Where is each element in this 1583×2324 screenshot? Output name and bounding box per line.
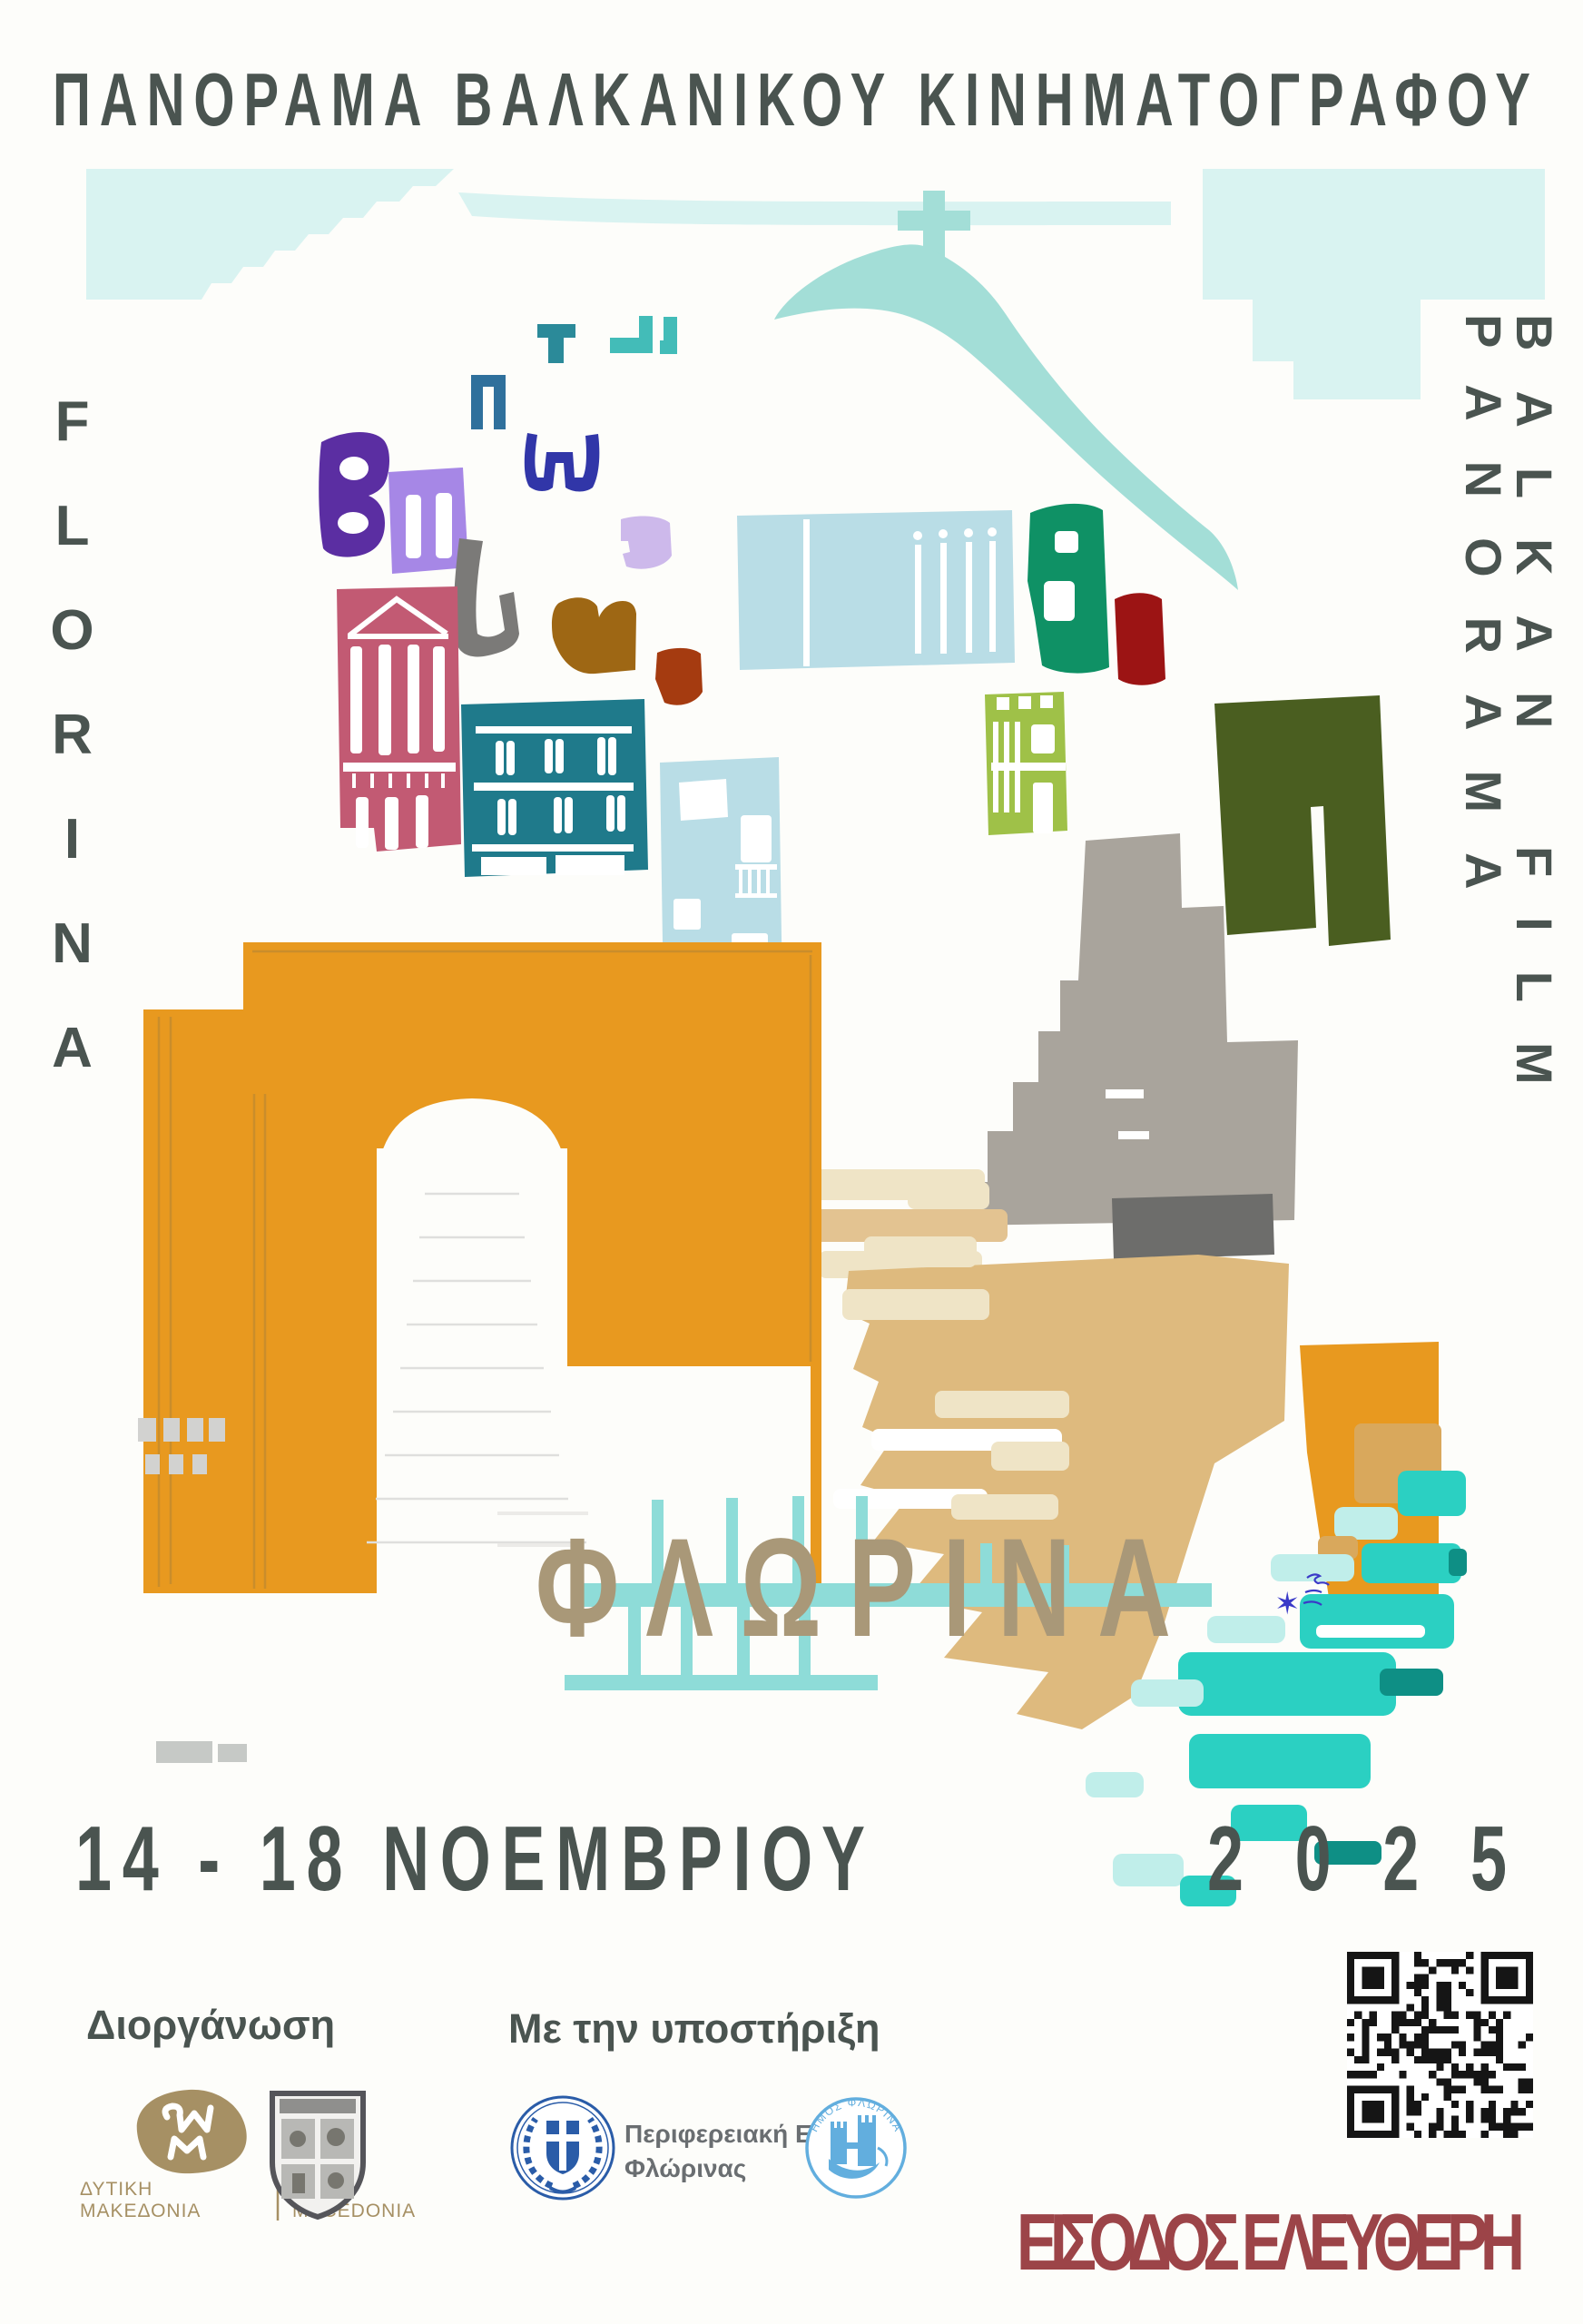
colonnade-building [737, 510, 1015, 670]
arch-cinema-building [143, 942, 821, 1598]
letter-l-shapes [610, 316, 677, 354]
date-range-text: 14 - 18 ΝΟΕΜΒΡΙΟΥ [75, 1807, 865, 1910]
signature-star-icon: ✶ [1274, 1587, 1301, 1621]
festival-poster: ΠΑΝΟΡΑΜΑ ΒΑΛΚΑΝΙΚΟΥ ΚΙΝΗΜΑΤΟΓΡΑΦΟΥ ΦΛΩΡΙ… [0, 0, 1583, 2324]
poster-artwork: ΠΑΝΟΡΑΜΑ ΒΑΛΚΑΝΙΚΟΥ ΚΙΝΗΜΑΤΟΓΡΑΦΟΥ ΦΛΩΡΙ… [0, 0, 1583, 2324]
pink-classical-building [337, 586, 461, 852]
letter-pi-shape [471, 375, 506, 429]
letter-u-shape [454, 538, 519, 656]
lilac-building [388, 468, 468, 574]
letter-t-shape [537, 324, 575, 363]
dark-red-blob-building [1115, 593, 1165, 685]
castle-building [985, 692, 1067, 835]
free-entry-text: ΕΙΣΟΔΟΣ ΕΛΕΥΘΕΡΗ [1017, 2197, 1525, 2287]
qr-code [1347, 1952, 1533, 2138]
support-label: Με την υποστήριξη [508, 2005, 880, 2052]
festival-name-vertical: BALKAN FILM PANORAMA [1458, 314, 1559, 1817]
letter-b-shape [319, 432, 389, 557]
letter-omega-shape [525, 433, 600, 492]
letter-m-shape [552, 597, 636, 674]
teal-building [461, 699, 648, 877]
rust-blob [655, 648, 703, 705]
emerald-blob-building [1027, 504, 1109, 674]
lavender-blob [621, 517, 672, 569]
wm-blob-icon [137, 2090, 247, 2173]
svg-text:ΜΑΚΕΔΟΝΙΑ: ΜΑΚΕΔΟΝΙΑ [80, 2201, 201, 2221]
city-name-vertical: FLORINA [44, 390, 100, 1069]
poster-title: ΠΑΝΟΡΑΜΑ ΒΑΛΚΑΝΙΚΟΥ ΚΙΝΗΜΑΤΟΓΡΑΦΟΥ [53, 59, 1530, 142]
film-crest-logo [272, 2093, 363, 2217]
dark-gray-block [1112, 1194, 1274, 1260]
svg-text:Φλώρινας: Φλώρινας [624, 2154, 746, 2182]
olive-building-shape [1214, 695, 1391, 946]
svg-text:ΔΥΤΙΚΗ: ΔΥΤΙΚΗ [80, 2179, 152, 2200]
florina-municipality-logo: ΔΗΜΟΣ ΦΛΩΡΙΝΑΣ [807, 2096, 905, 2197]
organizer-label: Διοργάνωση [86, 2002, 335, 2048]
